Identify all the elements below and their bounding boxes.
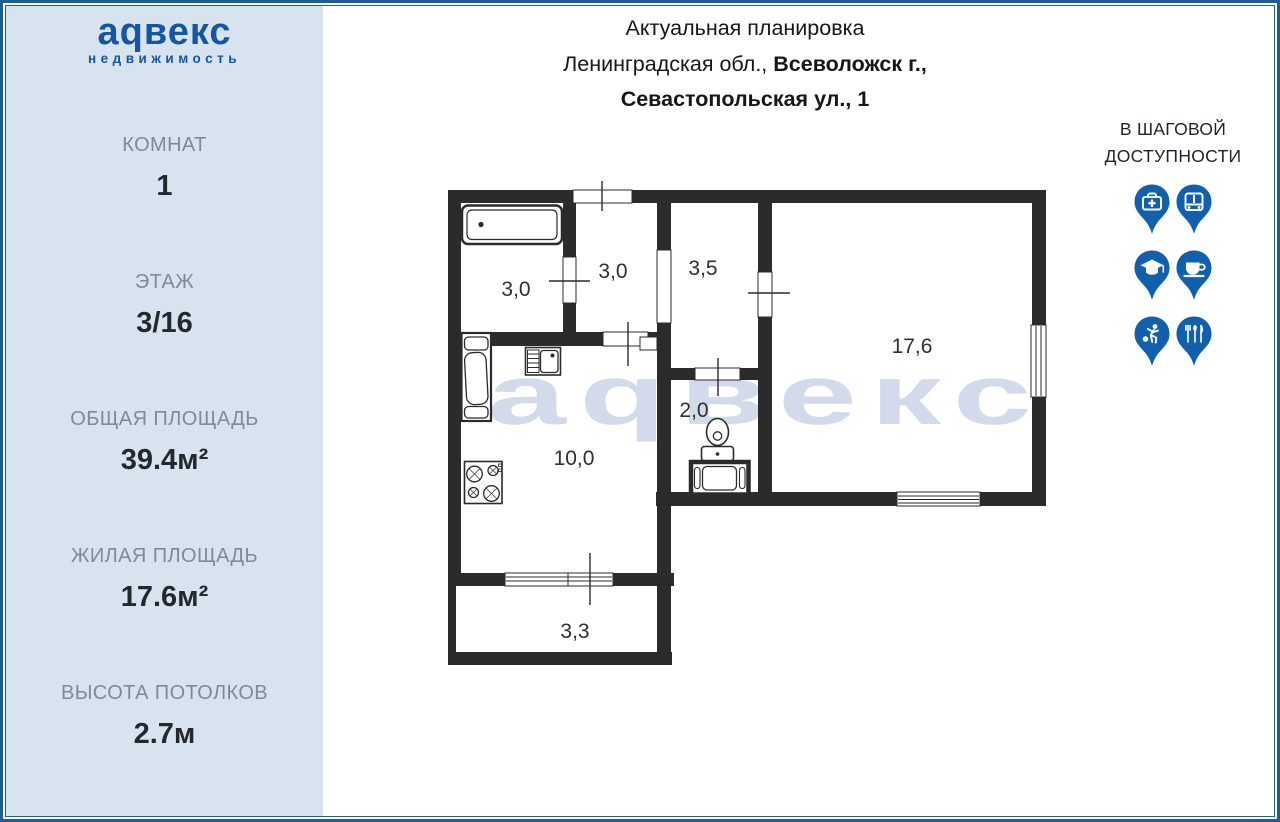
bathtub [462,206,562,245]
nearby-block: В ШАГОВОЙ ДОСТУПНОСТИ [1088,116,1258,368]
room-label-living: 17,6 [892,335,933,358]
pin-row-3 [1132,315,1214,368]
room-label-hallway: 3,5 [688,257,717,280]
stat-living-area: ЖИЛАЯ ПЛОЩАДЬ 17.6м² [6,544,323,613]
sport-pin [1132,315,1172,368]
sidebar: аqвекс недвижимость КОМНАТ 1 ЭТАЖ 3/16 О… [6,6,323,816]
fridge [462,333,492,421]
nearby-pins [1088,183,1258,368]
pin-row-1 [1132,183,1214,236]
stat-total-area: ОБЩАЯ ПЛОЩАДЬ 39.4м² [6,407,323,476]
address-line: Ленинградская обл., Всеволожск г., [420,47,1070,83]
room-label-wc: 2,0 [679,399,708,422]
stat-rooms: КОМНАТ 1 [6,133,323,202]
stat-ceiling-height: ВЫСОТА ПОТОЛКОВ 2.7м [6,681,323,750]
brand-logo: аqвекс недвижимость [6,14,323,66]
stat-ceiling-height-value: 2.7м [6,718,323,750]
room-label-balcony: 3,3 [560,620,589,643]
window-kitchen [505,573,613,586]
address-city: Всеволожск г., [773,52,927,76]
page-title-block: Актуальная планировка Ленинградская обл.… [420,11,1070,118]
duct-box [640,337,657,350]
address-street: Севастопольская ул., 1 [420,82,1070,118]
door-bathroom [563,257,576,303]
page-title: Актуальная планировка [420,11,1070,47]
stat-rooms-value: 1 [6,170,323,202]
room-label-bathroom: 3,0 [501,278,530,301]
nearby-title-line2: ДОСТУПНОСТИ [1088,143,1258,170]
floor-plan-svg: аqвекс [438,170,1062,676]
window-living-right [1031,325,1046,397]
address-region: Ленинградская обл., [563,52,773,76]
stat-total-area-label: ОБЩАЯ ПЛОЩАДЬ [6,407,323,431]
kitchen-sink [526,348,561,376]
stat-floor: ЭТАЖ 3/16 [6,270,323,339]
nearby-title-line1: В ШАГОВОЙ [1088,116,1258,143]
restaurant-pin [1174,315,1214,368]
brand-tagline: недвижимость [6,51,323,66]
cafe-pin [1174,249,1214,302]
stat-rooms-label: КОМНАТ [6,133,323,157]
door-hall [657,250,671,323]
wc-sink [691,462,749,495]
stat-living-area-label: ЖИЛАЯ ПЛОЩАДЬ [6,544,323,568]
door-living [758,272,772,317]
stat-living-area-value: 17.6м² [6,581,323,613]
stat-floor-label: ЭТАЖ [6,270,323,294]
floor-plan: аqвекс [438,170,1062,676]
transport-pin [1174,183,1214,236]
brand-logo-text: аqвекс [6,14,323,50]
medicine-pin [1132,183,1172,236]
room-label-kitchen: 10,0 [554,447,595,470]
room-label-hall-small: 3,0 [598,260,627,283]
stat-floor-value: 3/16 [6,307,323,339]
nearby-title: В ШАГОВОЙ ДОСТУПНОСТИ [1088,116,1258,170]
stat-total-area-value: 39.4м² [6,444,323,476]
stat-ceiling-height-label: ВЫСОТА ПОТОЛКОВ [6,681,323,705]
pin-row-2 [1132,249,1214,302]
education-pin [1132,249,1172,302]
stove [465,462,503,504]
